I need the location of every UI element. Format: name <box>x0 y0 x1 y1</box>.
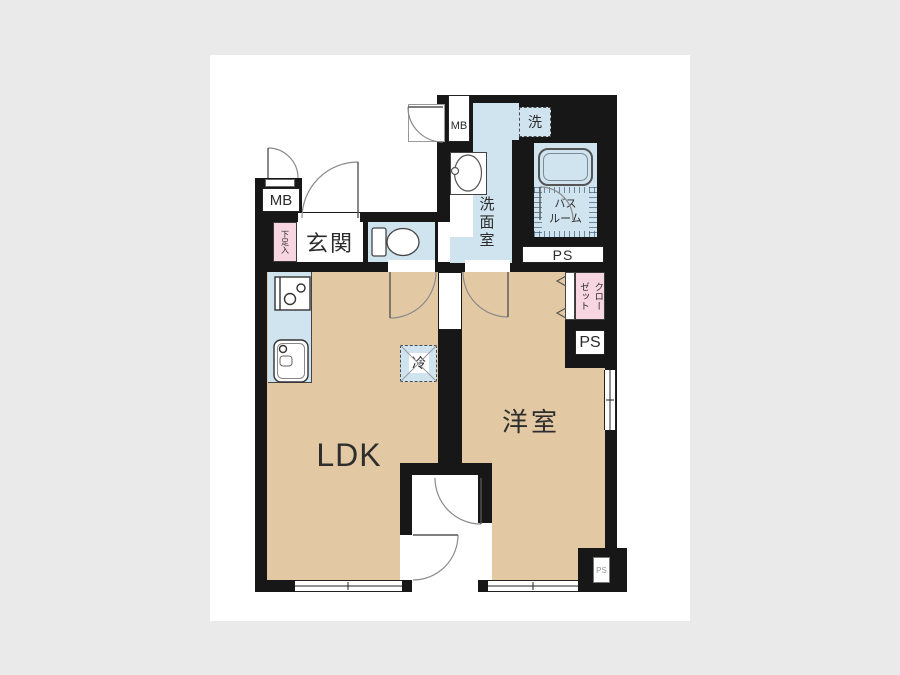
pipe-space-right: PS <box>575 330 605 355</box>
washroom-hall-floor <box>450 195 473 237</box>
closet-label: クロー ゼット <box>576 282 605 311</box>
window-right <box>604 370 616 430</box>
pipe-space-top: PS <box>522 246 604 263</box>
toilet-room <box>368 222 435 262</box>
kitchen-counter-area <box>268 272 312 383</box>
hall-passage <box>438 222 450 262</box>
folding-door-icon <box>565 272 575 320</box>
window-ldk-bottom <box>295 580 402 592</box>
pipe-space-bottom: PS <box>593 557 610 583</box>
washer-label: 洗 <box>528 112 542 132</box>
door-arc-entrance <box>302 162 358 218</box>
floorplan-card: 下足入 玄関 洗 洗面室 バス ルーム MB MB PS クロー ゼット PS <box>210 55 690 621</box>
vestibule-floor <box>412 475 478 592</box>
western-door-opening <box>465 260 510 272</box>
shoe-cabinet: 下足入 <box>273 222 297 262</box>
bathtub-icon <box>538 148 593 186</box>
washroom-label: 洗面室 <box>475 190 497 256</box>
washer-space: 洗 <box>519 107 551 137</box>
bathroom-label: バス ルーム <box>534 191 597 233</box>
meter-box-right: MB <box>448 95 470 142</box>
screenshot-root: { "colors": { "page_bg": "#eaeaea", "car… <box>0 0 900 675</box>
washbasin-counter <box>450 152 487 195</box>
closet: クロー ゼット <box>575 272 605 320</box>
partition-wall-upper <box>438 272 462 330</box>
vestibule-right-opening <box>478 523 492 580</box>
ps-top-label: PS <box>553 247 574 263</box>
ldk-label: LDK <box>299 439 399 471</box>
door-arc-mb-left <box>268 148 298 178</box>
mb-right-label: MB <box>451 120 468 132</box>
fridge-label: 冷 <box>409 353 429 373</box>
shoe-cabinet-label: 下足入 <box>280 230 291 254</box>
meter-box-left: MB <box>262 188 300 212</box>
vestibule-left-opening <box>400 535 412 580</box>
mb-left-door-panel <box>265 179 295 187</box>
ps-right-label: PS <box>579 334 600 352</box>
ps-bottom-label: PS <box>596 566 607 575</box>
ldk-door-opening <box>388 260 435 272</box>
room-entrance: 玄関 <box>297 222 363 262</box>
window-western-bottom <box>488 580 578 592</box>
mb-right-door-swing-area <box>408 104 445 142</box>
entrance-label: 玄関 <box>306 226 354 258</box>
western-room-label: 洋室 <box>481 405 581 435</box>
mb-left-label: MB <box>270 192 293 209</box>
entrance-door-opening <box>298 213 360 223</box>
